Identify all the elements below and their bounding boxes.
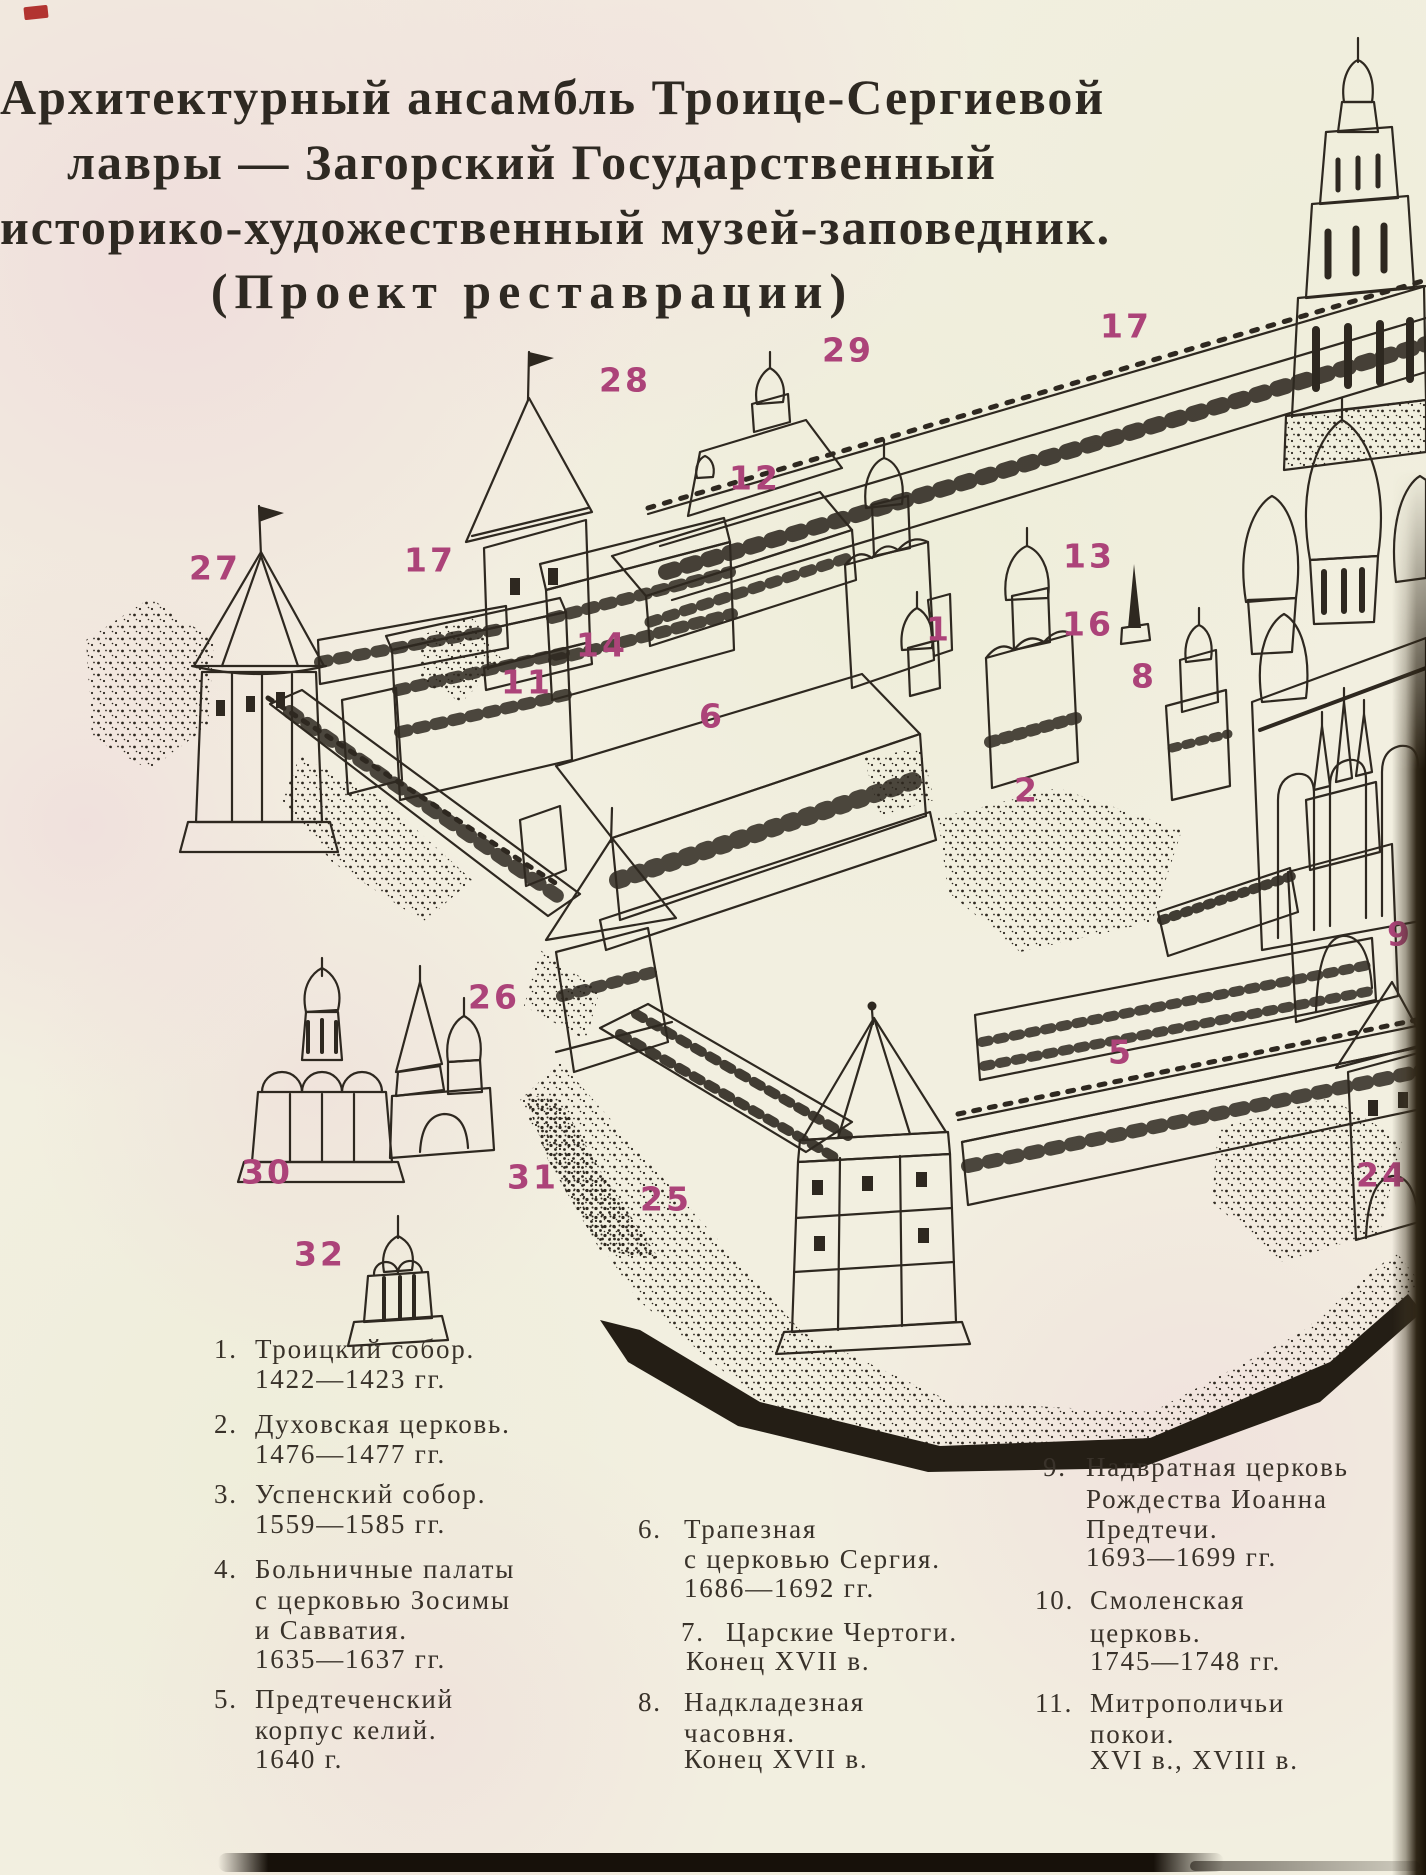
plan-label-1: 1 <box>926 610 952 649</box>
legend-item-6-line-2: с церковью Сергия. <box>684 1546 941 1573</box>
legend-item-7-line-1: Царские Чертоги. <box>726 1619 958 1646</box>
legend-item-2-line-1: Духовская церковь. <box>255 1411 511 1438</box>
legend-item-1-line-2: 1422—1423 гг. <box>255 1366 446 1393</box>
legend-item-2-line-2: 1476—1477 гг. <box>255 1441 446 1468</box>
legend-item-8-line-3: Конец XVII в. <box>684 1746 868 1773</box>
legend-item-6-line-3: 1686—1692 гг. <box>684 1575 875 1602</box>
plan-label-5: 5 <box>1108 1033 1134 1072</box>
plan-label-17: 17 <box>1100 307 1152 346</box>
obelisk-drawing <box>1121 564 1150 644</box>
bottom-edge-shadow <box>218 1853 1224 1872</box>
plan-label-11: 11 <box>501 663 553 702</box>
legend-item-4-line-1: Больничные палаты <box>255 1556 515 1583</box>
legend-item-10-line-1: Смоленская <box>1090 1587 1245 1614</box>
book-page: Архитектурный ансамбль Троице-Сергиевойл… <box>0 0 1426 1875</box>
legend-item-6-line-1: Трапезная <box>684 1516 817 1543</box>
chapel-32-drawing <box>348 1216 448 1346</box>
title-line-4: (Проект реставрации) <box>0 262 1064 320</box>
legend-item-7-line-2: Конец XVII в. <box>686 1648 870 1675</box>
legend-item-4-line-3: и Савватия. <box>255 1617 408 1644</box>
legend-item-5-line-3: 1640 г. <box>255 1746 343 1773</box>
legend-number-11: 11. <box>1035 1690 1073 1717</box>
plan-label-2: 2 <box>1014 771 1040 810</box>
plan-label-16: 16 <box>1062 605 1114 644</box>
bottom-edge-shadow-right <box>1190 1861 1420 1871</box>
page-edge-shadow <box>1392 470 1426 1875</box>
title-line-3: историко-художественный музей-заповедник… <box>0 198 1064 256</box>
scan-corner-mark <box>23 5 48 20</box>
legend-number-9: 9. <box>1043 1454 1067 1481</box>
legend-item-10-line-3: 1745—1748 гг. <box>1090 1648 1281 1675</box>
legend-number-1: 1. <box>214 1336 238 1363</box>
legend-item-5-line-1: Предтеченский <box>255 1686 454 1713</box>
legend-item-9-line-4: 1693—1699 гг. <box>1086 1544 1277 1571</box>
plan-label-30: 30 <box>241 1153 293 1192</box>
southwest-wall-drawing <box>600 1004 852 1158</box>
legend-item-4-line-4: 1635—1637 гг. <box>255 1646 446 1673</box>
chapel-8-drawing <box>1166 608 1230 800</box>
legend-number-6: 6. <box>638 1516 662 1543</box>
legend-number-3: 3. <box>214 1481 238 1508</box>
plan-label-12: 12 <box>729 459 781 498</box>
plan-label-6: 6 <box>699 697 725 736</box>
tower-26-drawing <box>546 808 676 1072</box>
legend-item-11-line-3: XVI в., XVIII в. <box>1090 1747 1299 1774</box>
trinity-cathedral-drawing <box>845 440 952 688</box>
legend-item-8-line-1: Надкладезная <box>684 1689 865 1716</box>
legend-number-10: 10. <box>1035 1587 1074 1614</box>
plan-label-27: 27 <box>189 549 241 588</box>
tower-25-drawing <box>776 1002 970 1355</box>
legend-item-10-line-2: церковь. <box>1090 1620 1201 1647</box>
plan-label-26: 26 <box>468 978 520 1017</box>
legend-item-11-line-2: покои. <box>1090 1721 1175 1748</box>
plan-label-14: 14 <box>576 626 628 665</box>
ground-stipple <box>86 598 1420 1456</box>
legend-item-9-line-1: Надвратная церковь <box>1086 1454 1349 1481</box>
legend-number-2: 2. <box>214 1411 238 1438</box>
plan-label-29: 29 <box>822 331 874 370</box>
legend-item-3-line-2: 1559—1585 гг. <box>255 1511 446 1538</box>
legend-number-8: 8. <box>638 1689 662 1716</box>
plan-label-13: 13 <box>1063 537 1115 576</box>
legend-item-5-line-2: корпус келий. <box>255 1717 437 1744</box>
church-30-drawing <box>238 958 404 1182</box>
legend-item-3-line-1: Успенский собор. <box>255 1481 486 1508</box>
title-line-2: лавры — Загорский Государственный <box>0 133 1064 191</box>
legend-item-8-line-2: часовня. <box>684 1720 796 1747</box>
plan-label-8: 8 <box>1131 657 1157 696</box>
plan-label-25: 25 <box>640 1180 692 1219</box>
legend-item-4-line-2: с церковью Зосимы <box>255 1587 511 1614</box>
title-line-1: Архитектурный ансамбль Троице-Сергиевой <box>0 68 1064 126</box>
legend-item-1-line-1: Троицкий собор. <box>255 1336 475 1363</box>
plan-label-28: 28 <box>599 361 651 400</box>
plan-label-31: 31 <box>507 1158 559 1197</box>
legend-item-9-line-3: Предтечи. <box>1086 1516 1218 1543</box>
bell-tower-drawing <box>1284 38 1426 470</box>
legend-number-4: 4. <box>214 1556 238 1583</box>
plan-label-32: 32 <box>294 1235 346 1274</box>
legend-number-5: 5. <box>214 1686 238 1713</box>
legend-item-11-line-1: Митрополичьи <box>1090 1690 1285 1717</box>
legend-number-7: 7. <box>681 1619 705 1646</box>
plan-label-17: 17 <box>404 541 456 580</box>
legend-item-9-line-2: Рождества Иоанна <box>1086 1486 1328 1513</box>
